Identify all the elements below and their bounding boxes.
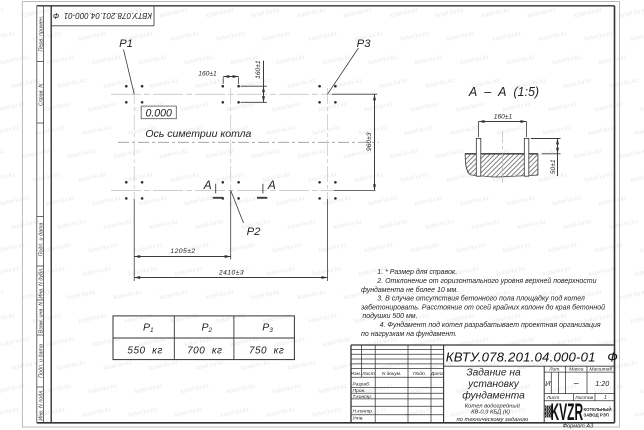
- svg-text:kotel-kv.kz: kotel-kv.kz: [502, 242, 532, 255]
- svg-text:kotel-kv.kz: kotel-kv.kz: [67, 289, 97, 302]
- svg-text:kotel-kv.kz: kotel-kv.kz: [496, 124, 526, 137]
- svg-text:kotel-kv.kz: kotel-kv.kz: [318, 242, 348, 255]
- svg-text:kotel-kv.kz: kotel-kv.kz: [113, 289, 143, 302]
- svg-text:Перв. примен.: Перв. примен.: [38, 16, 44, 52]
- svg-text:kotel-kv.kz: kotel-kv.kz: [506, 54, 536, 67]
- svg-text:kotel-kv.kz: kotel-kv.kz: [308, 171, 338, 184]
- svg-text:960±3: 960±3: [366, 132, 373, 151]
- svg-text:kotel-kv.kz: kotel-kv.kz: [11, 77, 41, 90]
- svg-text:kotel-kv.kz: kotel-kv.kz: [57, 77, 87, 90]
- svg-text:Ось симетрии котла: Ось симетрии котла: [145, 128, 251, 140]
- svg-text:kotel-kv.kz: kotel-kv.kz: [287, 218, 317, 231]
- svg-text:kotel-kv.kz: kotel-kv.kz: [542, 265, 572, 278]
- svg-text:kotel-kv.kz: kotel-kv.kz: [134, 242, 164, 255]
- svg-text:А: А: [203, 178, 212, 192]
- svg-text:kotel-kv.kz: kotel-kv.kz: [174, 406, 204, 419]
- svg-text:kotel-kv.kz: kotel-kv.kz: [404, 124, 434, 137]
- svg-text:kotel-kv.kz: kotel-kv.kz: [354, 171, 384, 184]
- svg-text:4. Фундамент под котел разраба: 4. Фундамент под котел разрабатывает про…: [380, 321, 601, 329]
- svg-text:kotel-kv.kz: kotel-kv.kz: [364, 101, 394, 114]
- svg-text:kotel-kv.kz: kotel-kv.kz: [563, 77, 593, 90]
- svg-text:kotel-kv.kz: kotel-kv.kz: [460, 195, 490, 208]
- svg-text:kotel-kv.kz: kotel-kv.kz: [272, 383, 302, 396]
- svg-text:kotel-kv.kz: kotel-kv.kz: [266, 406, 296, 419]
- svg-text:kotel-kv.kz: kotel-kv.kz: [0, 30, 16, 43]
- svg-text:–: –: [573, 377, 579, 387]
- svg-text:kotel-kv.kz: kotel-kv.kz: [584, 171, 614, 184]
- svg-text:2. Отклонение от горизонтально: 2. Отклонение от горизонтального уровня …: [376, 277, 596, 285]
- svg-text:Н.контр.: Н.контр.: [353, 409, 374, 415]
- svg-text:kotel-kv.kz: kotel-kv.kz: [0, 312, 16, 325]
- svg-text:kotel-kv.kz: kotel-kv.kz: [32, 171, 62, 184]
- svg-text:kotel-kv.kz: kotel-kv.kz: [389, 7, 419, 20]
- svg-text:kotel-kv.kz: kotel-kv.kz: [174, 265, 204, 278]
- svg-text:kotel-kv.kz: kotel-kv.kz: [138, 195, 168, 208]
- svg-text:kotel-kv.kz: kotel-kv.kz: [364, 242, 394, 255]
- svg-text:kotel-kv.kz: kotel-kv.kz: [0, 7, 5, 20]
- svg-text:kotel-kv.kz: kotel-kv.kz: [322, 336, 352, 349]
- svg-text:kotel-kv.kz: kotel-kv.kz: [414, 195, 444, 208]
- svg-text:kotel-kv.kz: kotel-kv.kz: [149, 77, 179, 90]
- svg-text:kotel-kv.kz: kotel-kv.kz: [527, 7, 557, 20]
- svg-text:kotel-kv.kz: kotel-kv.kz: [552, 54, 582, 67]
- svg-text:kotel-kv.kz: kotel-kv.kz: [78, 30, 108, 43]
- svg-text:kotel-kv.kz: kotel-kv.kz: [266, 265, 296, 278]
- svg-text:kotel-kv.kz: kotel-kv.kz: [11, 218, 41, 231]
- svg-text:Котел водогрейный: Котел водогрейный: [465, 402, 521, 409]
- svg-text:Взам. инв. N: Взам. инв. N: [38, 302, 44, 334]
- svg-text:kotel-kv.kz: kotel-kv.kz: [103, 218, 133, 231]
- svg-text:kotel-kv.kz: kotel-kv.kz: [630, 30, 644, 43]
- svg-text:kotel-kv.kz: kotel-kv.kz: [170, 171, 200, 184]
- svg-text:kotel-kv.kz: kotel-kv.kz: [619, 289, 644, 302]
- svg-text:700 кг: 700 кг: [187, 346, 222, 357]
- svg-text:kotel-kv.kz: kotel-kv.kz: [333, 218, 363, 231]
- svg-text:kotel-kv.kz: kotel-kv.kz: [21, 7, 51, 20]
- svg-text:kotel-kv.kz: kotel-kv.kz: [124, 171, 154, 184]
- svg-text:kotel-kv.kz: kotel-kv.kz: [184, 195, 214, 208]
- svg-text:kotel-kv.kz: kotel-kv.kz: [276, 195, 306, 208]
- svg-text:Справ. N: Справ. N: [38, 84, 44, 107]
- svg-text:kotel-kv.kz: kotel-kv.kz: [609, 218, 639, 231]
- svg-text:kotel-kv.kz: kotel-kv.kz: [619, 7, 644, 20]
- svg-text:kotel-kv.kz: kotel-kv.kz: [0, 171, 16, 184]
- svg-text:kotel-kv.kz: kotel-kv.kz: [46, 54, 76, 67]
- svg-text:kotel-kv.kz: kotel-kv.kz: [634, 124, 644, 137]
- svg-text:kotel-kv.kz: kotel-kv.kz: [552, 195, 582, 208]
- svg-text:kotel-kv.kz: kotel-kv.kz: [78, 171, 108, 184]
- svg-text:kotel-kv.kz: kotel-kv.kz: [517, 218, 547, 231]
- svg-text:kotel-kv.kz: kotel-kv.kz: [159, 148, 189, 161]
- svg-text:kotel-kv.kz: kotel-kv.kz: [0, 406, 20, 419]
- svg-text:kotel-kv.kz: kotel-kv.kz: [0, 124, 20, 137]
- svg-text:kotel-kv.kz: kotel-kv.kz: [82, 265, 112, 278]
- svg-text:kotel-kv.kz: kotel-kv.kz: [308, 30, 338, 43]
- svg-text:kotel-kv.kz: kotel-kv.kz: [619, 148, 644, 161]
- svg-text:Дата: Дата: [430, 371, 444, 377]
- svg-text:kotel-kv.kz: kotel-kv.kz: [0, 242, 26, 255]
- svg-text:kotel-kv.kz: kotel-kv.kz: [226, 383, 256, 396]
- svg-text:kotel-kv.kz: kotel-kv.kz: [410, 101, 440, 114]
- svg-text:kotel-kv.kz: kotel-kv.kz: [205, 7, 235, 20]
- svg-text:Утв.: Утв.: [353, 416, 364, 422]
- svg-text:160±1: 160±1: [198, 70, 217, 77]
- svg-text:kotel-kv.kz: kotel-kv.kz: [318, 383, 348, 396]
- svg-text:kotel-kv.kz: kotel-kv.kz: [368, 54, 398, 67]
- svg-text:kotel-kv.kz: kotel-kv.kz: [446, 30, 476, 43]
- svg-text:kotel-kv.kz: kotel-kv.kz: [496, 265, 526, 278]
- svg-text:1: 1: [604, 395, 607, 401]
- svg-text:kotel-kv.kz: kotel-kv.kz: [88, 383, 118, 396]
- svg-text:kotel-kv.kz: kotel-kv.kz: [113, 148, 143, 161]
- svg-text:kotel-kv.kz: kotel-kv.kz: [609, 77, 639, 90]
- svg-text:kotel-kv.kz: kotel-kv.kz: [262, 171, 292, 184]
- svg-text:kotel-kv.kz: kotel-kv.kz: [46, 336, 76, 349]
- svg-text:kotel-kv.kz: kotel-kv.kz: [435, 148, 465, 161]
- svg-text:kotel-kv.kz: kotel-kv.kz: [42, 383, 72, 396]
- svg-text:kotel-kv.kz: kotel-kv.kz: [588, 265, 618, 278]
- svg-text:kotel-kv.kz: kotel-kv.kz: [506, 195, 536, 208]
- svg-text:kotel-kv.kz: kotel-kv.kz: [404, 406, 434, 419]
- svg-text:kotel-kv.kz: kotel-kv.kz: [502, 101, 532, 114]
- svg-text:P1: P1: [119, 38, 133, 50]
- svg-text:kotel-kv.kz: kotel-kv.kz: [0, 383, 26, 396]
- svg-text:Пров.: Пров.: [353, 388, 366, 394]
- svg-text:kotel-kv.kz: kotel-kv.kz: [0, 195, 30, 208]
- svg-text:kotel-kv.kz: kotel-kv.kz: [42, 101, 72, 114]
- svg-text:P3: P3: [262, 322, 273, 335]
- svg-text:kotel-kv.kz: kotel-kv.kz: [21, 289, 51, 302]
- svg-text:kotel-kv.kz: kotel-kv.kz: [205, 148, 235, 161]
- svg-text:kotel-kv.kz: kotel-kv.kz: [548, 242, 578, 255]
- svg-text:kotel-kv.kz: kotel-kv.kz: [542, 124, 572, 137]
- svg-text:kotel-kv.kz: kotel-kv.kz: [379, 77, 409, 90]
- svg-text:Т.контр.: Т.контр.: [353, 394, 373, 400]
- svg-text:фундамента: фундамента: [462, 390, 525, 402]
- svg-text:подушки 500 мм.: подушки 500 мм.: [362, 312, 417, 320]
- svg-text:kotel-kv.kz: kotel-kv.kz: [538, 30, 568, 43]
- svg-text:kotel-kv.kz: kotel-kv.kz: [435, 7, 465, 20]
- svg-text:kotel-kv.kz: kotel-kv.kz: [598, 195, 628, 208]
- svg-text:kotel-kv.kz: kotel-kv.kz: [425, 77, 455, 90]
- svg-text:kotel-kv.kz: kotel-kv.kz: [88, 101, 118, 114]
- svg-text:kotel-kv.kz: kotel-kv.kz: [287, 359, 317, 372]
- svg-text:550 кг: 550 кг: [127, 346, 162, 357]
- svg-text:kotel-kv.kz: kotel-kv.kz: [456, 101, 486, 114]
- svg-text:kotel-kv.kz: kotel-kv.kz: [128, 406, 158, 419]
- svg-text:Лит.: Лит.: [548, 367, 560, 373]
- svg-text:kotel-kv.kz: kotel-kv.kz: [379, 359, 409, 372]
- svg-text:kotel-kv.kz: kotel-kv.kz: [312, 124, 342, 137]
- svg-text:kotel-kv.kz: kotel-kv.kz: [78, 312, 108, 325]
- svg-text:kotel-kv.kz: kotel-kv.kz: [180, 383, 210, 396]
- svg-text:P2: P2: [201, 322, 212, 335]
- svg-text:kotel-kv.kz: kotel-kv.kz: [573, 148, 603, 161]
- svg-text:kotel-kv.kz: kotel-kv.kz: [180, 101, 210, 114]
- svg-text:А: А: [267, 178, 276, 192]
- svg-text:160±1: 160±1: [255, 60, 262, 79]
- svg-text:kotel-kv.kz: kotel-kv.kz: [456, 242, 486, 255]
- svg-text:kotel-kv.kz: kotel-kv.kz: [276, 54, 306, 67]
- svg-text:Масштаб: Масштаб: [589, 367, 612, 373]
- svg-text:kotel-kv.kz: kotel-kv.kz: [410, 242, 440, 255]
- svg-text:kotel-kv.kz: kotel-kv.kz: [389, 148, 419, 161]
- svg-text:kotel-kv.kz: kotel-kv.kz: [312, 265, 342, 278]
- svg-text:1:20: 1:20: [595, 379, 609, 388]
- svg-text:kotel-kv.kz: kotel-kv.kz: [552, 336, 582, 349]
- svg-text:kotel-kv.kz: kotel-kv.kz: [251, 7, 281, 20]
- svg-text:kotel-kv.kz: kotel-kv.kz: [322, 195, 352, 208]
- svg-text:2410±3: 2410±3: [218, 269, 244, 276]
- svg-text:kotel-kv.kz: kotel-kv.kz: [138, 54, 168, 67]
- svg-text:забетонировать. Расстояние от: забетонировать. Расстояние от осей крайн…: [360, 303, 605, 311]
- svg-text:kotel-kv.kz: kotel-kv.kz: [450, 124, 480, 137]
- svg-text:Подп.: Подп.: [413, 371, 426, 377]
- svg-text:kotel-kv.kz: kotel-kv.kz: [272, 101, 302, 114]
- svg-text:kotel-kv.kz: kotel-kv.kz: [368, 195, 398, 208]
- svg-text:по нагрузкам на фундамент.: по нагрузкам на фундамент.: [361, 330, 457, 338]
- svg-text:kotel-kv.kz: kotel-kv.kz: [573, 7, 603, 20]
- svg-text:Формат А3: Формат А3: [563, 424, 594, 430]
- svg-text:kotel-kv.kz: kotel-kv.kz: [297, 289, 327, 302]
- svg-text:kotel-kv.kz: kotel-kv.kz: [308, 312, 338, 325]
- svg-text:kotel-kv.kz: kotel-kv.kz: [42, 242, 72, 255]
- svg-text:kotel-kv.kz: kotel-kv.kz: [46, 195, 76, 208]
- svg-text:0.000: 0.000: [145, 108, 172, 120]
- svg-text:kotel-kv.kz: kotel-kv.kz: [128, 265, 158, 278]
- svg-text:kotel-kv.kz: kotel-kv.kz: [0, 336, 30, 349]
- svg-text:kotel-kv.kz: kotel-kv.kz: [251, 289, 281, 302]
- svg-text:kotel-kv.kz: kotel-kv.kz: [492, 171, 522, 184]
- svg-text:P3: P3: [357, 38, 372, 50]
- svg-text:kotel-kv.kz: kotel-kv.kz: [640, 383, 644, 396]
- svg-text:kotel-kv.kz: kotel-kv.kz: [584, 30, 614, 43]
- svg-text:kotel-kv.kz: kotel-kv.kz: [0, 54, 30, 67]
- svg-text:kotel-kv.kz: kotel-kv.kz: [195, 77, 225, 90]
- svg-text:kotel-kv.kz: kotel-kv.kz: [262, 30, 292, 43]
- svg-text:kotel-kv.kz: kotel-kv.kz: [195, 218, 225, 231]
- svg-text:kotel-kv.kz: kotel-kv.kz: [11, 359, 41, 372]
- svg-text:Задание на: Задание на: [466, 367, 521, 378]
- svg-text:kotel-kv.kz: kotel-kv.kz: [184, 54, 214, 67]
- svg-text:kotel-kv.kz: kotel-kv.kz: [230, 195, 260, 208]
- svg-text:kotel-kv.kz: kotel-kv.kz: [32, 30, 62, 43]
- svg-text:kotel-kv.kz: kotel-kv.kz: [159, 289, 189, 302]
- svg-text:kotel-kv.kz: kotel-kv.kz: [318, 101, 348, 114]
- svg-text:kotel-kv.kz: kotel-kv.kz: [216, 30, 246, 43]
- svg-text:kotel-kv.kz: kotel-kv.kz: [634, 406, 644, 419]
- svg-text:160±1: 160±1: [494, 114, 513, 121]
- svg-text:kotel-kv.kz: kotel-kv.kz: [548, 101, 578, 114]
- svg-text:kotel-kv.kz: kotel-kv.kz: [272, 242, 302, 255]
- svg-text:kotel-kv.kz: kotel-kv.kz: [195, 359, 225, 372]
- svg-text:Инв. N подл.: Инв. N подл.: [38, 389, 44, 421]
- svg-text:kotel-kv.kz: kotel-kv.kz: [471, 218, 501, 231]
- svg-text:P2: P2: [247, 226, 262, 238]
- svg-text:установку: установку: [467, 379, 520, 390]
- svg-text:по техническому заданию: по техническому заданию: [456, 417, 528, 423]
- svg-text:kotel-kv.kz: kotel-kv.kz: [297, 7, 327, 20]
- svg-text:kotel-kv.kz: kotel-kv.kz: [640, 242, 644, 255]
- svg-text:kotel-kv.kz: kotel-kv.kz: [492, 30, 522, 43]
- svg-text:kotel-kv.kz: kotel-kv.kz: [82, 124, 112, 137]
- svg-text:kotel-kv.kz: kotel-kv.kz: [414, 54, 444, 67]
- svg-text:kotel-kv.kz: kotel-kv.kz: [425, 218, 455, 231]
- svg-text:КВТУ.078.201.04.000-01 Ф: КВТУ.078.201.04.000-01 Ф: [53, 11, 152, 20]
- svg-text:750 кг: 750 кг: [249, 346, 284, 357]
- svg-text:kotel-kv.kz: kotel-kv.kz: [0, 265, 20, 278]
- svg-text:kotel-kv.kz: kotel-kv.kz: [82, 406, 112, 419]
- svg-text:Разраб.: Разраб.: [353, 381, 371, 387]
- svg-text:kotel-kv.kz: kotel-kv.kz: [481, 7, 511, 20]
- svg-text:kotel-kv.kz: kotel-kv.kz: [297, 148, 327, 161]
- svg-text:kotel-kv.kz: kotel-kv.kz: [0, 289, 5, 302]
- svg-text:фундамента не более 10 мм.: фундамента не более 10 мм.: [361, 286, 458, 294]
- svg-text:P1: P1: [143, 322, 154, 335]
- svg-text:kotel-kv.kz: kotel-kv.kz: [149, 218, 179, 231]
- svg-text:kotel-kv.kz: kotel-kv.kz: [0, 101, 26, 114]
- svg-text:N докум.: N докум.: [382, 371, 402, 377]
- svg-text:50±1: 50±1: [550, 159, 557, 174]
- svg-text:1. * Размер для справок.: 1. * Размер для справок.: [377, 268, 457, 276]
- svg-text:kotel-kv.kz: kotel-kv.kz: [379, 218, 409, 231]
- svg-text:kotel-kv.kz: kotel-kv.kz: [0, 148, 5, 161]
- svg-text:kotel-kv.kz: kotel-kv.kz: [251, 148, 281, 161]
- svg-text:kotel-kv.kz: kotel-kv.kz: [287, 77, 317, 90]
- svg-text:kotel-kv.kz: kotel-kv.kz: [333, 359, 363, 372]
- svg-text:И: И: [545, 379, 551, 388]
- svg-text:kotel-kv.kz: kotel-kv.kz: [630, 171, 644, 184]
- svg-text:kotel-kv.kz: kotel-kv.kz: [92, 54, 122, 67]
- svg-text:kotel-kv.kz: kotel-kv.kz: [92, 195, 122, 208]
- svg-text:А – А (1:5): А – А (1:5): [468, 85, 539, 99]
- svg-text:Лист: Лист: [361, 371, 375, 377]
- svg-text:kotel-kv.kz: kotel-kv.kz: [588, 124, 618, 137]
- svg-text:kotel-kv.kz: kotel-kv.kz: [21, 148, 51, 161]
- svg-text:kotel-kv.kz: kotel-kv.kz: [563, 218, 593, 231]
- svg-text:kotel-kv.kz: kotel-kv.kz: [170, 30, 200, 43]
- svg-text:kotel-kv.kz: kotel-kv.kz: [400, 30, 430, 43]
- svg-text:kotel-kv.kz: kotel-kv.kz: [266, 124, 296, 137]
- svg-text:kotel-kv.kz: kotel-kv.kz: [630, 312, 644, 325]
- svg-text:kotel-kv.kz: kotel-kv.kz: [103, 77, 133, 90]
- svg-text:KVZR: KVZR: [551, 400, 584, 427]
- svg-text:Масса: Масса: [569, 367, 584, 373]
- svg-text:Инв. N дубл.: Инв. N дубл.: [38, 267, 44, 298]
- svg-text:kotel-kv.kz: kotel-kv.kz: [67, 148, 97, 161]
- svg-text:3. В случае отсутствия бетонно: 3. В случае отсутствия бетонного пола пл…: [377, 295, 585, 303]
- svg-text:kotel-kv.kz: kotel-kv.kz: [400, 171, 430, 184]
- svg-text:kotel-kv.kz: kotel-kv.kz: [205, 289, 235, 302]
- svg-text:kotel-kv.kz: kotel-kv.kz: [343, 7, 373, 20]
- svg-text:ЗАВОД РЭП: ЗАВОД РЭП: [584, 412, 609, 417]
- svg-text:kotel-kv.kz: kotel-kv.kz: [460, 54, 490, 67]
- svg-text:kotel-kv.kz: kotel-kv.kz: [57, 359, 87, 372]
- svg-text:kotel-kv.kz: kotel-kv.kz: [216, 312, 246, 325]
- svg-text:kotel-kv.kz: kotel-kv.kz: [32, 312, 62, 325]
- svg-text:Изм.: Изм.: [351, 371, 361, 377]
- svg-text:Подп. и дата: Подп. и дата: [38, 223, 44, 257]
- svg-text:kotel-kv.kz: kotel-kv.kz: [220, 406, 250, 419]
- svg-text:Подп. и дата: Подп. и дата: [38, 344, 44, 378]
- svg-text:kotel-kv.kz: kotel-kv.kz: [598, 54, 628, 67]
- svg-text:kotel-kv.kz: kotel-kv.kz: [312, 406, 342, 419]
- svg-text:kotel-kv.kz: kotel-kv.kz: [506, 336, 536, 349]
- svg-text:kotel-kv.kz: kotel-kv.kz: [241, 359, 271, 372]
- svg-text:kotel-kv.kz: kotel-kv.kz: [598, 336, 628, 349]
- svg-text:КВ-0,9 КБД (К): КВ-0,9 КБД (К): [471, 410, 510, 416]
- svg-text:kotel-kv.kz: kotel-kv.kz: [460, 336, 490, 349]
- svg-text:kotel-kv.kz: kotel-kv.kz: [57, 218, 87, 231]
- svg-text:kotel-kv.kz: kotel-kv.kz: [640, 101, 644, 114]
- svg-text:1205±2: 1205±2: [170, 248, 195, 255]
- svg-text:kotel-kv.kz: kotel-kv.kz: [634, 265, 644, 278]
- svg-text:kotel-kv.kz: kotel-kv.kz: [103, 359, 133, 372]
- svg-text:kotel-kv.kz: kotel-kv.kz: [149, 359, 179, 372]
- svg-text:КОТЕЛЬНЫЙ: КОТЕЛЬНЫЙ: [584, 407, 612, 412]
- svg-text:kotel-kv.kz: kotel-kv.kz: [134, 383, 164, 396]
- svg-text:КВТУ.078.201.04.000-01 Ф: КВТУ.078.201.04.000-01 Ф: [446, 349, 618, 364]
- svg-text:kotel-kv.kz: kotel-kv.kz: [159, 7, 189, 20]
- svg-text:kotel-kv.kz: kotel-kv.kz: [88, 242, 118, 255]
